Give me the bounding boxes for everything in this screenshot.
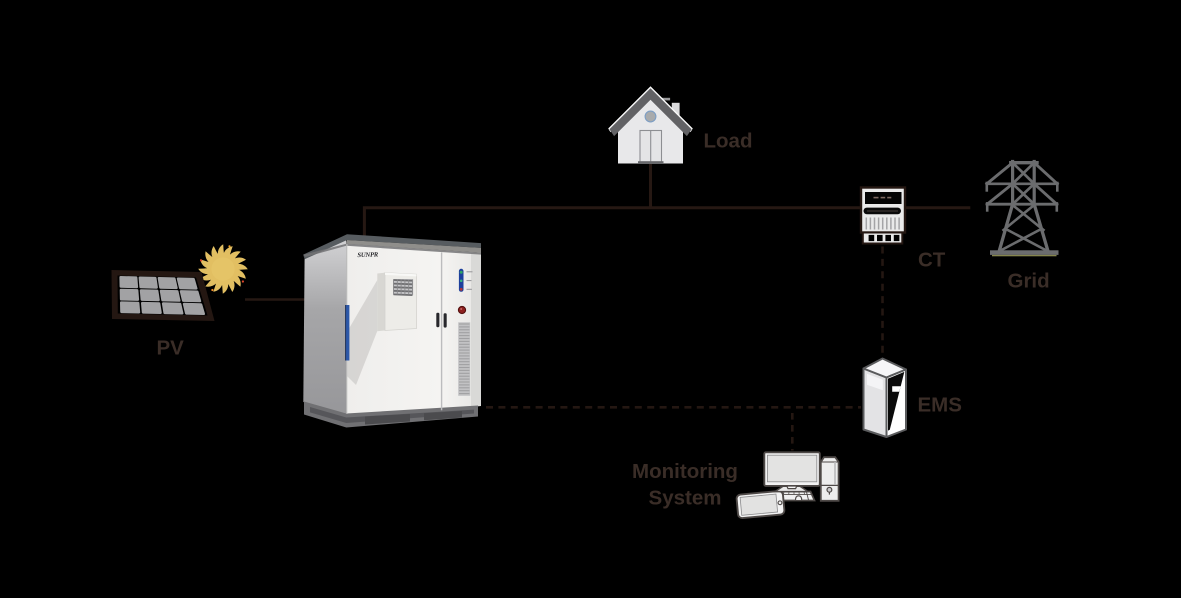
svg-text:Load: Load xyxy=(704,130,753,153)
svg-text:EMS: EMS xyxy=(918,394,962,417)
svg-text:Monitoring: Monitoring xyxy=(632,460,738,483)
svg-text:Grid: Grid xyxy=(1008,270,1050,293)
svg-text:CT: CT xyxy=(918,249,946,272)
svg-text:System: System xyxy=(649,487,722,510)
svg-text:SUNPR: SUNPR xyxy=(357,251,379,259)
svg-text:PV: PV xyxy=(157,337,185,360)
